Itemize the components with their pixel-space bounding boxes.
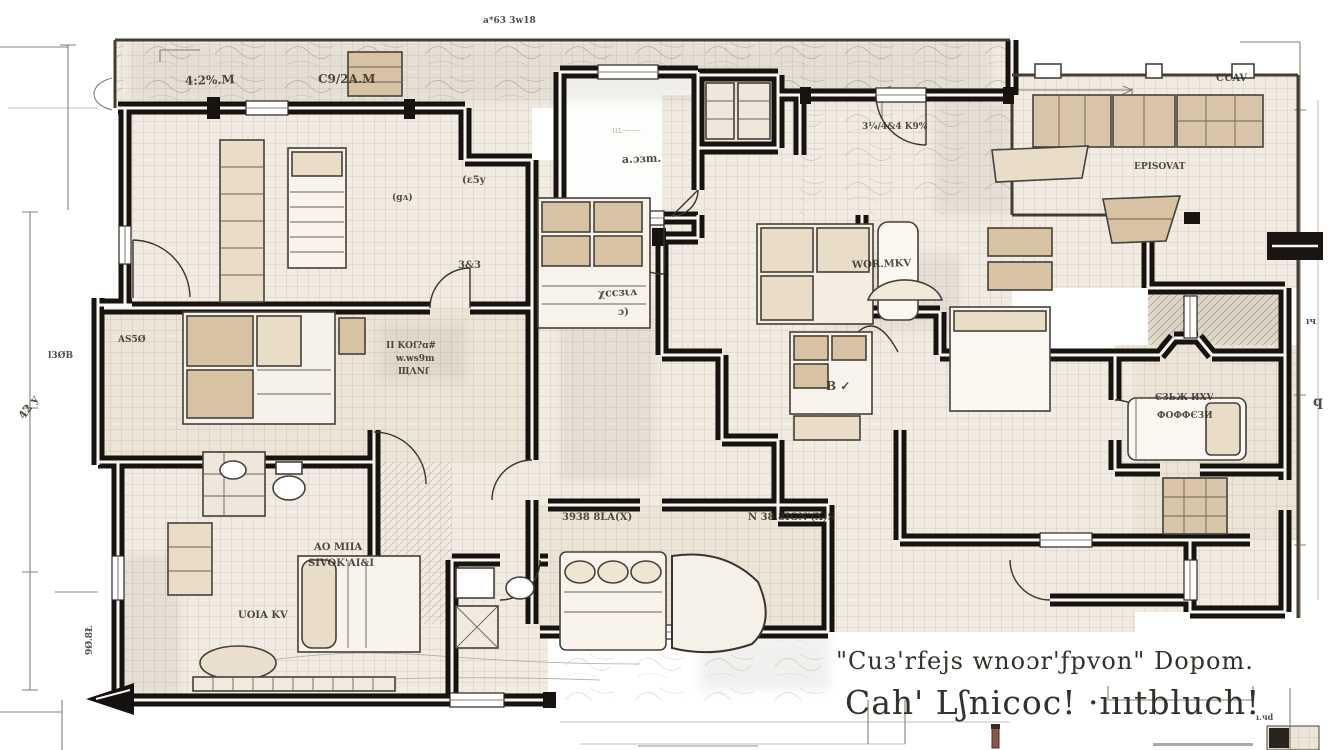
fineprint-right bbox=[1153, 743, 1253, 746]
kitchen-shelf bbox=[992, 146, 1088, 182]
label-white-room-faint: uʟ—— bbox=[612, 126, 641, 136]
label-note-1: II KOſ?ɑ# bbox=[386, 341, 436, 351]
bed-room-d bbox=[298, 556, 420, 652]
label-living-uoia: UOIA KV bbox=[238, 610, 288, 621]
window bbox=[246, 101, 288, 115]
bed-room-f bbox=[560, 552, 666, 650]
window bbox=[450, 693, 504, 707]
label-porch-right: C9/2A.M bbox=[318, 72, 375, 86]
sofa-right bbox=[1163, 478, 1227, 534]
window bbox=[112, 556, 124, 600]
window bbox=[598, 65, 658, 79]
window bbox=[876, 88, 926, 102]
window bbox=[1040, 533, 1092, 547]
bench bbox=[193, 677, 395, 691]
label-closet-as50: AS5Ø bbox=[117, 334, 146, 345]
bed-room-b bbox=[183, 312, 335, 424]
wardrobe bbox=[220, 140, 264, 302]
label-right-bed-2: ФОФФЄЗИ bbox=[1157, 411, 1213, 421]
label-room-a-33: 3&3 bbox=[458, 260, 481, 271]
label-kitchen: EPISOVAT bbox=[1134, 162, 1186, 172]
label-right-bed-1: ЄЗЬЖ ИXV bbox=[1155, 393, 1215, 403]
label-center-wqr: WOR.MKV bbox=[851, 258, 912, 271]
label-porch-left: 4:2%.M bbox=[185, 72, 235, 88]
label-left-vertical: 9Ø.8Ł bbox=[84, 625, 95, 655]
label-margin-right-q: q bbox=[1313, 394, 1323, 410]
marker-pin bbox=[991, 724, 1000, 748]
label-room-a-small: (ɛ5y bbox=[462, 175, 487, 186]
label-bed-f-2: N 38.8IGN'(X)S bbox=[748, 512, 835, 523]
label-note-2: w.ws9m bbox=[395, 354, 435, 364]
label-hall-2: ɔ) bbox=[618, 307, 629, 318]
bottom-right-corner-dark bbox=[1269, 728, 1289, 748]
caption-line-2: Cah' Lʃnicoc! ·ıııtbluch! bbox=[845, 683, 1260, 722]
label-cuav: CUAV bbox=[1216, 73, 1247, 84]
label-margin-l30b: l3ØB bbox=[48, 350, 74, 361]
sofa-center bbox=[757, 222, 918, 324]
label-white-room: a.ɔɜm. bbox=[622, 152, 662, 166]
bed-center bbox=[538, 198, 650, 328]
label-bed-b-check: B ✓ bbox=[826, 379, 850, 393]
label-margin-right-iy: ıч bbox=[1306, 317, 1316, 327]
bed-room-a bbox=[288, 148, 346, 268]
label-living-ao1: AO MIIA bbox=[313, 542, 362, 553]
label-bed-f-1: 3938 8LA(X) bbox=[562, 512, 632, 523]
label-living-ao2: SIVOK'AI&I bbox=[308, 558, 374, 569]
label-note-3: ЩΛNſ bbox=[398, 367, 430, 377]
cabinet bbox=[168, 523, 212, 595]
floor-plan-sketch: 4:2%.M C9/2A.M a*63 3w18 uʟ—— a.ɔɜm. (ɛ5… bbox=[0, 0, 1344, 750]
oval-table bbox=[200, 646, 276, 680]
window bbox=[1184, 560, 1197, 600]
label-top-small: a*63 3w18 bbox=[483, 16, 536, 26]
label-hall-1: χccɜιʌ bbox=[597, 285, 638, 300]
nightstand bbox=[339, 318, 365, 354]
window bbox=[1184, 296, 1197, 338]
caption-line-1: "Cuɜ'rfejs wnoɔr'ƒpvon" Dopom. bbox=[836, 647, 1254, 675]
label-dim-top-right: 3¼/4&4 K9% bbox=[862, 121, 928, 132]
fineprint-left bbox=[638, 745, 758, 747]
label-room-a-ga: (gʌ) bbox=[392, 192, 413, 203]
caption: "Cuɜ'rfejs wnoɔr'ƒpvon" Dopom. Cah' Lʃni… bbox=[836, 647, 1260, 722]
bed-right bbox=[1128, 398, 1246, 460]
window bbox=[119, 226, 131, 264]
laundry-shelves bbox=[706, 83, 770, 139]
toilet bbox=[273, 476, 305, 500]
